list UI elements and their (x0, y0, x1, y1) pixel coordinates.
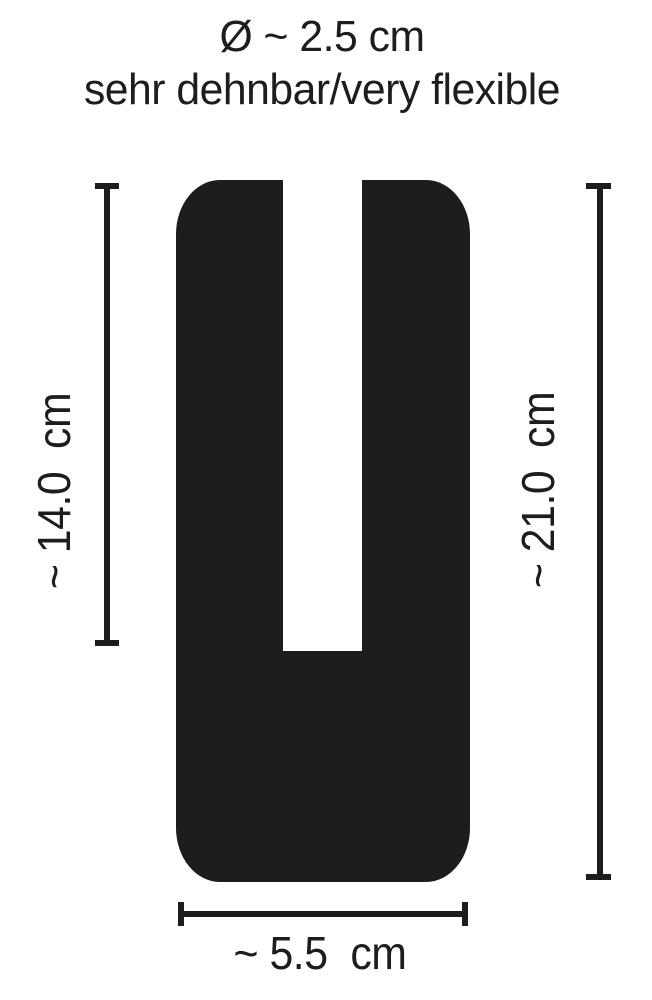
flexibility-text: sehr dehnbar/very flexible (84, 63, 560, 116)
diameter-text: Ø ~ 2.5 cm (84, 10, 560, 63)
slot-depth-label: ~ 14.0 cm (31, 393, 77, 589)
dimension-left-bottom-tick (95, 640, 119, 646)
dimension-right-bottom-tick (586, 874, 611, 880)
dimension-line-bottom (178, 902, 468, 926)
dimension-line-right (586, 183, 611, 880)
dimension-line-left (95, 183, 119, 646)
product-opening-slot (283, 172, 362, 651)
dimension-right-line (597, 183, 603, 880)
total-length-label: ~ 21.0 cm (515, 392, 561, 588)
product-dimension-diagram: Ø ~ 2.5 cm sehr dehnbar/very flexible ~ … (0, 0, 652, 1000)
width-label: ~ 5.5 cm (234, 930, 407, 976)
dimension-left-line (104, 183, 110, 646)
dimension-bottom-right-tick (462, 902, 468, 926)
dimension-bottom-line (178, 911, 468, 917)
title-block: Ø ~ 2.5 cm sehr dehnbar/very flexible (84, 10, 560, 116)
